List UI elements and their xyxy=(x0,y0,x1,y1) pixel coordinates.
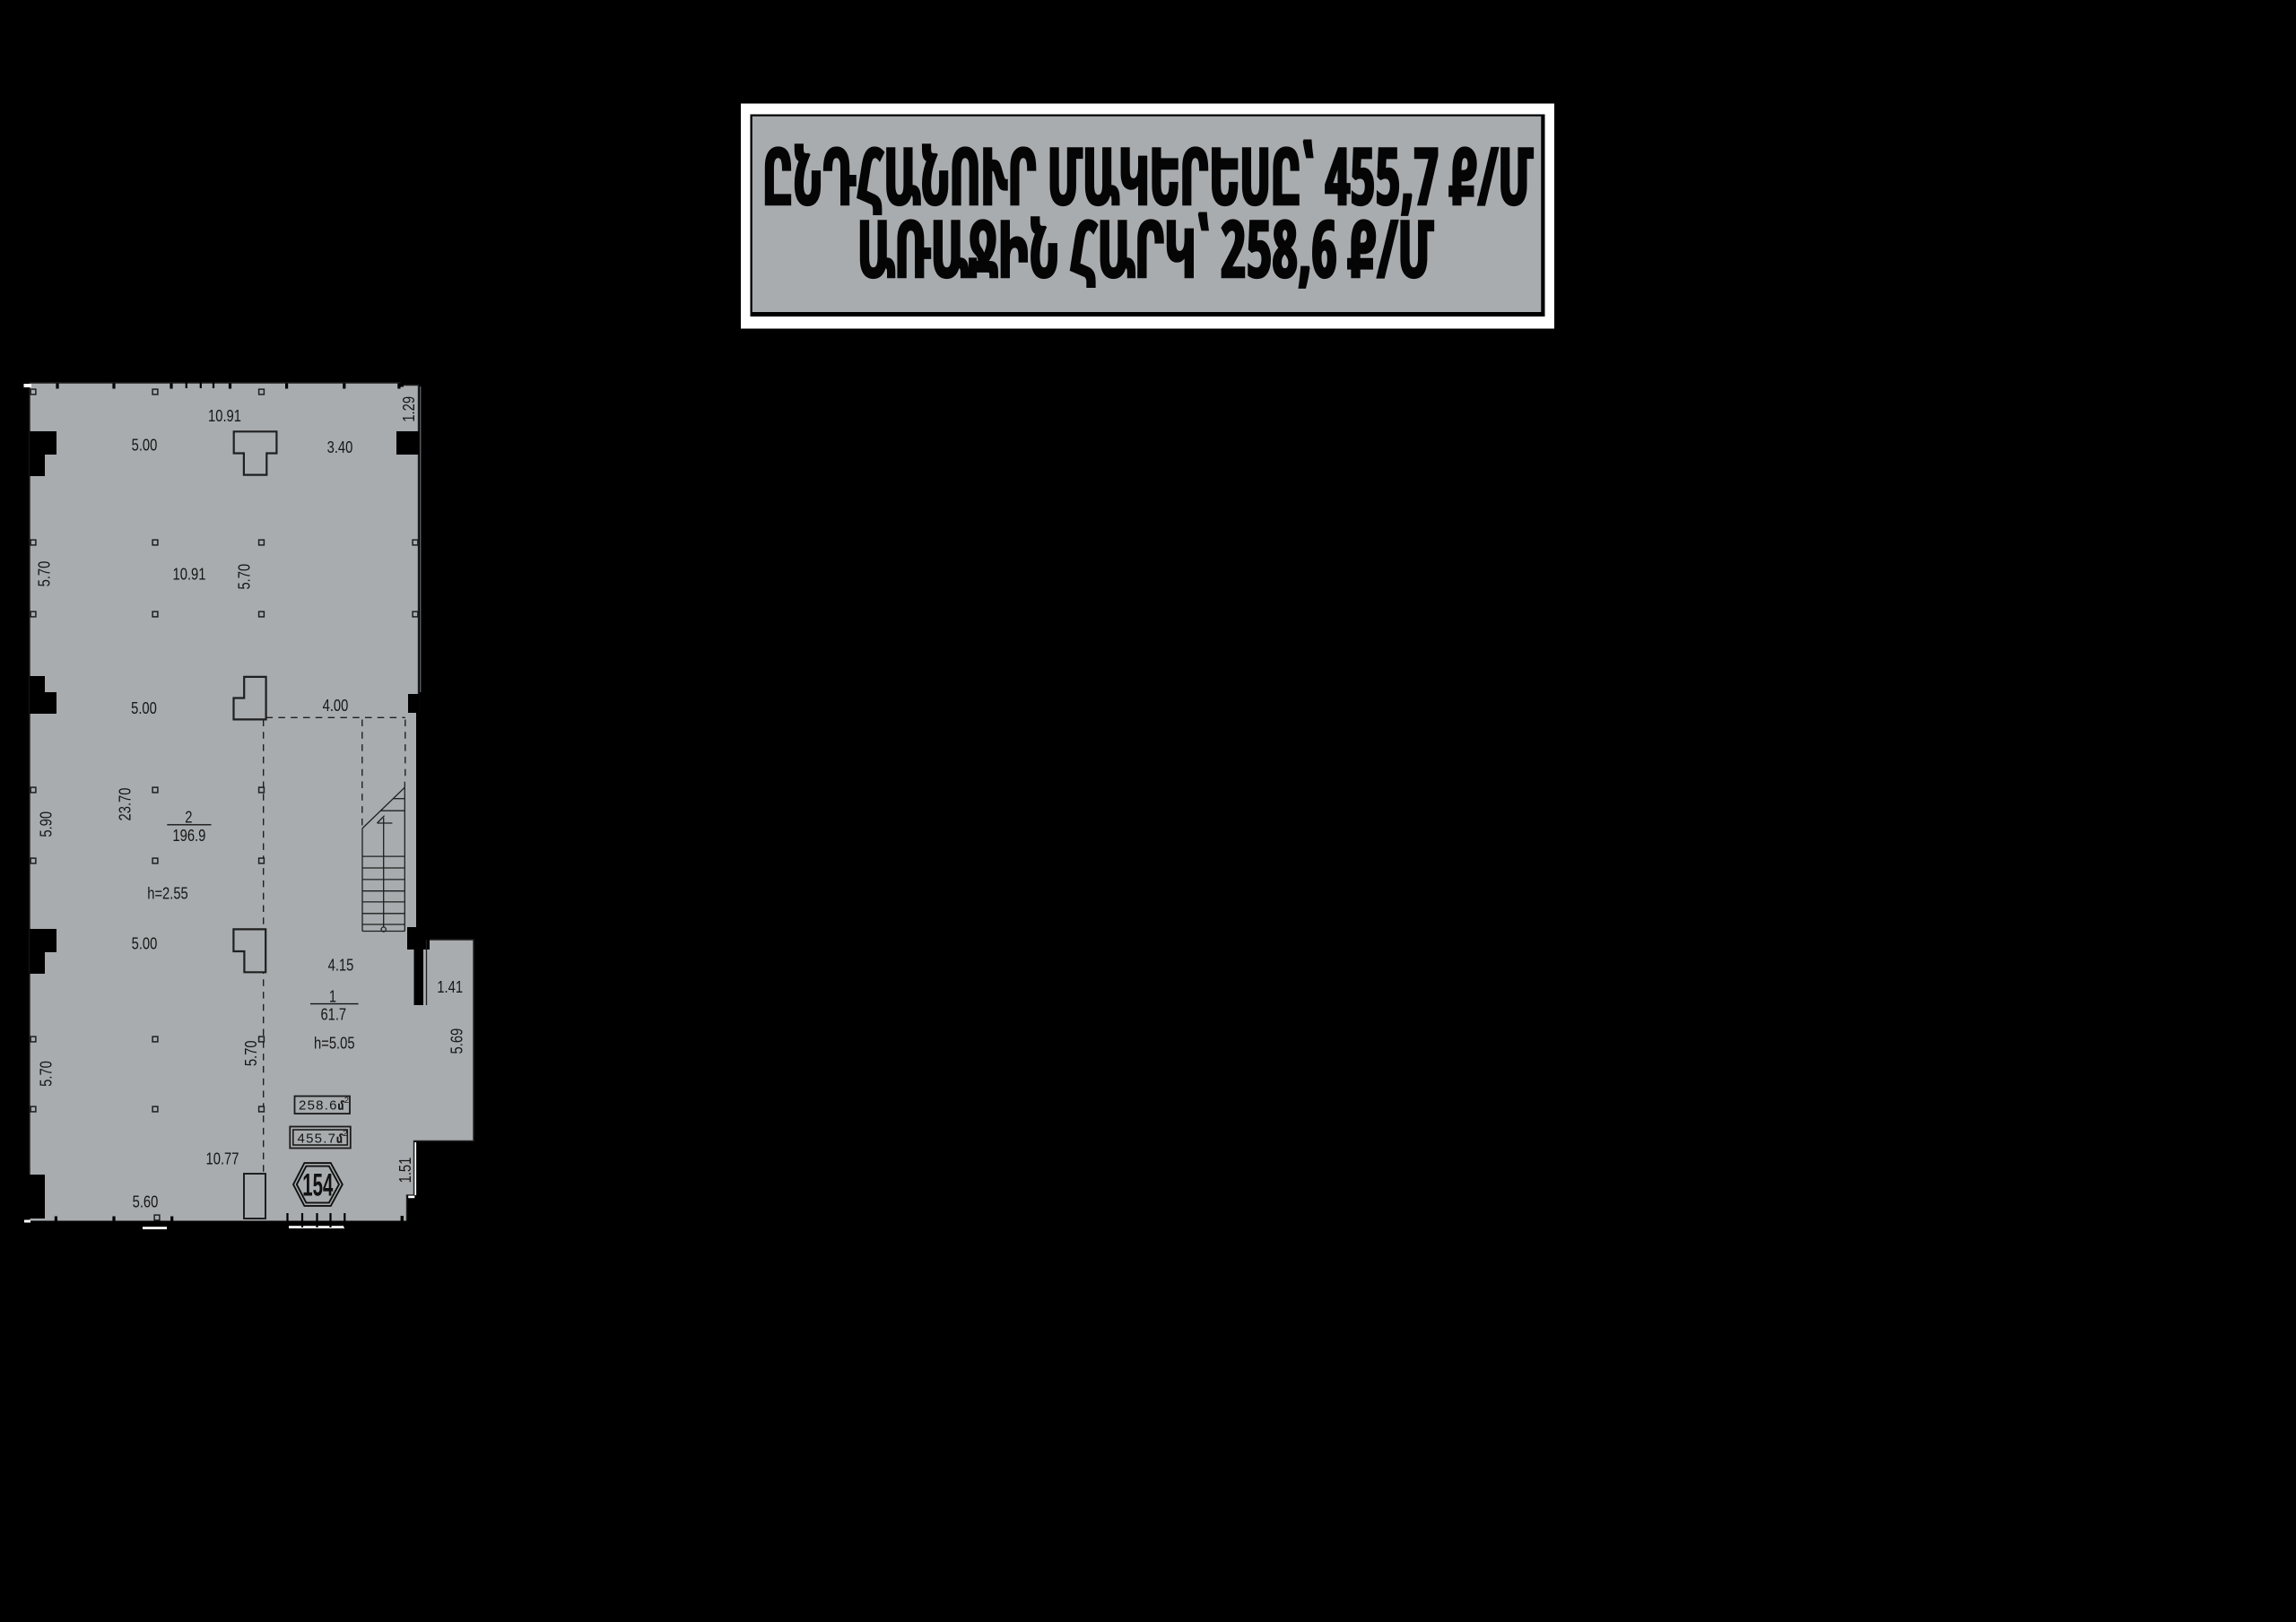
svg-text:455.7: 455.7 xyxy=(298,1132,336,1147)
svg-text:61.7: 61.7 xyxy=(320,1006,346,1024)
svg-text:1.41: 1.41 xyxy=(437,978,463,996)
svg-text:2: 2 xyxy=(343,1129,347,1139)
svg-text:3.40: 3.40 xyxy=(327,438,353,456)
svg-text:4.00: 4.00 xyxy=(323,697,349,715)
svg-text:2: 2 xyxy=(344,1096,349,1106)
svg-text:23.70: 23.70 xyxy=(117,788,135,821)
svg-text:5.00: 5.00 xyxy=(131,699,157,717)
svg-text:h=5.05: h=5.05 xyxy=(314,1035,355,1053)
svg-text:258.6: 258.6 xyxy=(299,1098,337,1114)
svg-text:5.60: 5.60 xyxy=(133,1193,159,1211)
svg-text:1: 1 xyxy=(329,987,336,1005)
svg-text:2: 2 xyxy=(185,809,192,827)
svg-text:1.29: 1.29 xyxy=(400,396,418,422)
svg-text:5.69: 5.69 xyxy=(448,1028,466,1054)
svg-text:5.90: 5.90 xyxy=(37,811,55,837)
svg-text:1.51: 1.51 xyxy=(396,1158,414,1184)
svg-text:h=2.55: h=2.55 xyxy=(147,885,188,903)
svg-text:10.91: 10.91 xyxy=(173,566,206,584)
svg-text:10.91: 10.91 xyxy=(208,407,241,425)
svg-text:196.9: 196.9 xyxy=(172,827,205,845)
svg-text:10.77: 10.77 xyxy=(206,1150,239,1168)
svg-text:4.15: 4.15 xyxy=(328,957,354,975)
svg-text:5.70: 5.70 xyxy=(35,561,53,587)
svg-text:5.70: 5.70 xyxy=(37,1061,55,1087)
svg-text:5.70: 5.70 xyxy=(235,564,253,590)
svg-text:154: 154 xyxy=(302,1168,333,1203)
svg-text:5.00: 5.00 xyxy=(132,935,158,953)
svg-text:5.70: 5.70 xyxy=(242,1040,260,1066)
svg-text:5.00: 5.00 xyxy=(132,437,158,455)
